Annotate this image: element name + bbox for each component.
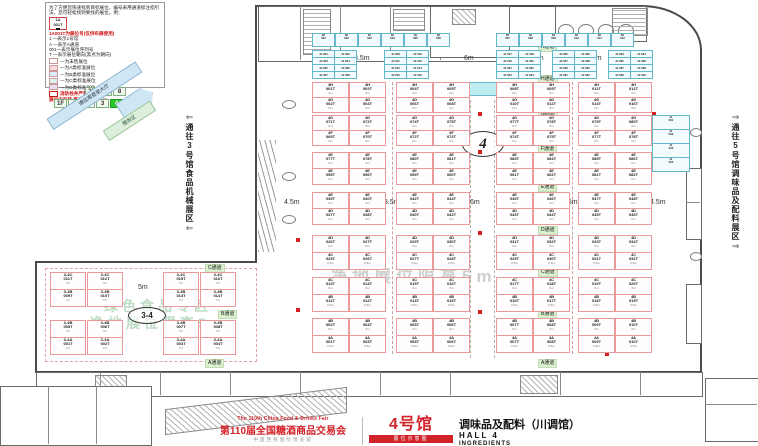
booth-4D043T: 4D043T6m bbox=[496, 208, 533, 225]
booth-4H005T: 4H005T6m bbox=[433, 82, 470, 98]
legend-intro: 为了方便您快速找到目标展位，编号采用通道标注指引法，您可轻松找到要找的展位。例： bbox=[49, 5, 161, 16]
partition bbox=[640, 372, 641, 395]
booth-4B005T: 4B005T6m bbox=[396, 318, 433, 336]
legend-example-line2: 001T bbox=[53, 22, 62, 27]
annex-north-wall bbox=[35, 261, 257, 263]
booth-4L003: 4L003 bbox=[652, 143, 690, 158]
hall-subtitle: 调味品及配料（川调馆） HALL 4 INGREDIENTS bbox=[459, 416, 580, 446]
booth-4D034T: 4D034T6m bbox=[615, 235, 652, 253]
booth-4C016T: 4C016T6m bbox=[433, 277, 470, 295]
booth-4J016: 4J 016 bbox=[406, 71, 429, 79]
booth-3-4C015T: 3-4C015T7m bbox=[163, 272, 199, 290]
booth-4H001T: 4H001T6m bbox=[312, 82, 349, 98]
east-rooms bbox=[686, 168, 702, 240]
booth-4C026T: 4C026T6.5m bbox=[349, 252, 386, 270]
venue-name: 中国西部国际博览城 bbox=[210, 437, 356, 443]
booth-4E055T: 4E055T6m bbox=[312, 168, 349, 185]
left-arrow-icon: ⇐ bbox=[186, 112, 194, 123]
booth-4L001: 4L001 bbox=[652, 115, 690, 130]
booth-4E040T: 4E040T6m bbox=[349, 192, 386, 209]
stairs bbox=[303, 9, 331, 55]
partition bbox=[230, 372, 231, 395]
booth-4C018T: 4C018T6m bbox=[533, 277, 570, 295]
partition bbox=[96, 386, 97, 444]
booth-4K012: 4K012 bbox=[611, 33, 634, 47]
booth-4G071T: 4G071T6m bbox=[312, 115, 349, 131]
booth-3-4B007T: 3-4B007T7m bbox=[163, 320, 199, 338]
booth-3-4B010T: 3-4B010T7m bbox=[87, 289, 123, 307]
booth-4J032: 4J 032 bbox=[574, 71, 597, 79]
booth-4D045T: 4D045T6m bbox=[578, 208, 615, 225]
booth-4G077T: 4G077T6m bbox=[496, 115, 533, 131]
booth-3-4B006T: 3-4B006T7m bbox=[87, 320, 123, 338]
fire-hydrant-marker bbox=[296, 238, 300, 242]
booth-4C031T: 4C031T6.5m bbox=[578, 252, 615, 270]
booth-4G002T: 4G002T6m bbox=[312, 97, 349, 113]
divider bbox=[362, 417, 363, 445]
booth-4K002: 4K002 bbox=[335, 33, 358, 47]
booth-3-4A003T: 3-4A003T7m bbox=[163, 337, 199, 355]
booth-4K011: 4K011 bbox=[588, 33, 611, 47]
booth-4H011T: 4H011T6m bbox=[578, 82, 615, 98]
booth-3-4B014T: 3-4B014T7m bbox=[200, 289, 236, 307]
booth-4J023: 4J 023 bbox=[496, 71, 519, 79]
booth-4J007: 4J 007 bbox=[312, 71, 335, 79]
aisle-width-label: 5m bbox=[138, 284, 148, 291]
hall-name-cn: 调味品及配料（川调馆） bbox=[459, 416, 580, 432]
aisle-label-A通道: A通道 bbox=[205, 359, 224, 368]
aisle-width-label: 4.5m bbox=[284, 199, 300, 206]
door-swing bbox=[690, 252, 702, 261]
legend-example-booth: 1A 001T bbox=[49, 17, 67, 30]
booth-4D030T: 4D030T6m bbox=[433, 235, 470, 253]
booth-4E081T: 4E081T6m bbox=[578, 168, 615, 185]
booth-4E048T: 4E048T6m bbox=[615, 192, 652, 209]
hall-title: 4号馆 展位示意图 bbox=[369, 416, 453, 446]
aisle-label-B通道: B通道 bbox=[218, 310, 237, 319]
booth-4E059T: 4E059T6m bbox=[396, 168, 433, 185]
booth-4B018T: 4B018T6.5m bbox=[578, 294, 615, 312]
title-block: The 110th China Food & Drinks Fair 第110届… bbox=[210, 416, 640, 446]
booth-4G075T: 4G075T6m bbox=[433, 115, 470, 131]
booth-4E046T: 4E046T6m bbox=[533, 192, 570, 209]
booth-3-4A001T: 3-4A001T7m bbox=[50, 337, 86, 355]
booth-4F074T: 4F074T6m bbox=[496, 130, 533, 146]
booth-4G016T: 4G016T6m bbox=[615, 97, 652, 113]
booth-3-4B009T: 3-4B009T7m bbox=[50, 289, 86, 307]
booth-4C019T: 4C019T6m bbox=[578, 277, 615, 295]
booth-4A003T: 4A003T6.5m bbox=[349, 335, 386, 353]
door-swing bbox=[282, 172, 296, 181]
passage-to-hall5: ⇒ 通往5号馆调味品及配料展区 ⇒ bbox=[730, 112, 741, 252]
booth-4A006T: 4A006T6.5m bbox=[433, 335, 470, 353]
booth-4K007: 4K007 bbox=[496, 33, 519, 47]
floorplan-page: 为了方便您快速找到目标展位，编号采用通道标注指引法，您可轻松找到要找的展位。例：… bbox=[0, 0, 758, 446]
booth-3-4A004T: 3-4A004T7m bbox=[200, 337, 236, 355]
partition bbox=[560, 372, 561, 395]
booth-4G012T: 4G012T6m bbox=[533, 97, 570, 113]
booth-4A009T: 4A009T6.5m bbox=[578, 335, 615, 353]
booth-4B015T: 4B015T6.5m bbox=[433, 294, 470, 312]
booth-4D037T: 4D037T6m bbox=[312, 208, 349, 225]
stairs bbox=[520, 375, 558, 394]
booth-4G014T: 4G014T6m bbox=[578, 97, 615, 113]
booth-4F072T: 4F072T6m bbox=[396, 130, 433, 146]
booth-4E045T: 4E045T6m bbox=[496, 192, 533, 209]
booth-3-4A002T: 3-4A002T7m bbox=[87, 337, 123, 355]
aisle-width-label: 4.5m bbox=[650, 199, 666, 206]
booth-4B016T: 4B016T6.5m bbox=[496, 294, 533, 312]
hall-name-en: HALL 4 bbox=[459, 432, 580, 441]
partition bbox=[300, 6, 301, 60]
booth-4F075T: 4F075T6m bbox=[533, 130, 570, 146]
swatch bbox=[49, 71, 58, 77]
booth-3-4C011T: 3-4C011T7m bbox=[50, 272, 86, 290]
west-wall bbox=[255, 5, 257, 262]
legend-key-lines: 1 —表示1号馆A —表示A通道001—表示展位序列号T —表示展位朝向(黑点为… bbox=[49, 36, 161, 58]
booth-4G078T: 4G078T6m bbox=[533, 115, 570, 131]
booth-4J040: 4J 040 bbox=[630, 71, 653, 79]
folding-doors bbox=[258, 140, 276, 252]
booth-4F078T: 4F078T6m bbox=[615, 130, 652, 146]
booth-4B008T: 4B008T6m bbox=[533, 318, 570, 336]
fair-identity: The 110th China Food & Drinks Fair 第110届… bbox=[210, 416, 356, 446]
aisle-line bbox=[392, 82, 393, 354]
booth-4G080T: 4G080T6m bbox=[615, 115, 652, 131]
booth-4E039T: 4E039T6m bbox=[312, 192, 349, 209]
booth-4J039: 4J 039 bbox=[608, 71, 631, 79]
booth-4A008T: 4A008T6.5m bbox=[533, 335, 570, 353]
booth-4B004T: 4B004T6m bbox=[349, 318, 386, 336]
booth-4C017T: 4C017T6m bbox=[496, 277, 533, 295]
booth-3-4C012T: 3-4C012T7m bbox=[87, 272, 123, 290]
booth-4C032T: 4C032T6.5m bbox=[615, 252, 652, 270]
booth-4B010T: 4B010T6m bbox=[615, 318, 652, 336]
booth-4L002: 4L002 bbox=[652, 129, 690, 144]
booth-4C025T: 4C025T6.5m bbox=[312, 252, 349, 270]
booth-4B019T: 4B019T6.5m bbox=[615, 294, 652, 312]
fire-hydrant-marker bbox=[478, 150, 482, 154]
booth-4B013T: 4B013T6.5m bbox=[396, 294, 433, 312]
swatch bbox=[49, 65, 58, 71]
booth-4E061T: 4E061T6m bbox=[496, 168, 533, 185]
booth-4B007T: 4B007T6m bbox=[496, 318, 533, 336]
aisle-label-D通道: D通道 bbox=[538, 226, 558, 235]
partition bbox=[380, 372, 381, 395]
booth-4H004T: 4H004T6m bbox=[396, 82, 433, 98]
escalator bbox=[393, 9, 425, 31]
booth-4J015: 4J 015 bbox=[384, 71, 407, 79]
outbuilding-se bbox=[705, 378, 758, 442]
right-arrow-icon: ⇒ bbox=[732, 241, 740, 252]
booth-4E077T: 4E077T6m bbox=[312, 152, 349, 169]
door-swing bbox=[282, 100, 296, 109]
legend-box: 为了方便您快速找到目标展位，编号采用通道标注指引法，您可轻松找到要找的展位。例：… bbox=[45, 2, 165, 88]
booth-4F069T: 4F069T6m bbox=[312, 130, 349, 146]
legend-swatch-row: —为B类标准展位 bbox=[49, 71, 161, 77]
booth-4D026T: 4D026T6m bbox=[312, 235, 349, 253]
booth-4D038T: 4D038T6m bbox=[349, 208, 386, 225]
booth-4L004: 4L004 bbox=[652, 157, 690, 172]
booth-4C013T: 4C013T6m bbox=[312, 277, 349, 295]
annex-west-wall bbox=[35, 261, 37, 372]
booth-4K008: 4K008 bbox=[519, 33, 542, 47]
booth-4H002T: 4H002T6m bbox=[349, 82, 386, 98]
booth-4D032T: 4D032T6m bbox=[533, 235, 570, 253]
booth-4B006T: 4B006T6m bbox=[433, 318, 470, 336]
booth-4J024: 4J 024 bbox=[518, 71, 541, 79]
booth-4E078T: 4E078T6m bbox=[349, 152, 386, 169]
booth-4F073T: 4F073T6m bbox=[433, 130, 470, 146]
booth-4K005: 4K005 bbox=[404, 33, 427, 47]
aisle-width-label: 6m bbox=[470, 199, 480, 206]
booth-4E044T: 4E044T6m bbox=[433, 192, 470, 209]
booth-4G004T: 4G004T6m bbox=[349, 97, 386, 113]
booth-4E080T: 4E080T6m bbox=[396, 152, 433, 169]
partition bbox=[48, 386, 49, 444]
swatch bbox=[49, 78, 58, 84]
booth-4K006: 4K006 bbox=[427, 33, 450, 47]
booth-4B017T: 4B017T6.5m bbox=[533, 294, 570, 312]
stairs bbox=[452, 9, 476, 25]
door-swing bbox=[690, 128, 702, 137]
booth-4H012T: 4H012T6m bbox=[615, 82, 652, 98]
booth-4D042T: 4D042T6m bbox=[433, 208, 470, 225]
fire-hydrant-marker bbox=[478, 310, 482, 314]
booth-4D040T: 4D040T6m bbox=[396, 208, 433, 225]
booth-4E083T: 4E083T6m bbox=[496, 152, 533, 169]
booth-4K009: 4K009 bbox=[542, 33, 565, 47]
booth-4B009T: 4B009T6m bbox=[578, 318, 615, 336]
legend-swatch-row: —为未售展位 bbox=[49, 58, 161, 64]
booth-4F077T: 4F077T6m bbox=[578, 130, 615, 146]
booth-4G079T: 4G079T6m bbox=[578, 115, 615, 131]
booth-4C030T: 4C030T6.5m bbox=[533, 252, 570, 270]
booth-3-4C016T: 3-4C016T7m bbox=[200, 272, 236, 290]
fire-hydrant-marker bbox=[296, 308, 300, 312]
aisle-line bbox=[572, 82, 573, 354]
booth-4A007T: 4A007T6.5m bbox=[496, 335, 533, 353]
outbuilding-sw bbox=[0, 386, 152, 446]
booth-4E084T: 4E084T6m bbox=[533, 152, 570, 169]
fire-hydrant-icon bbox=[49, 91, 58, 97]
booth-3-4B005T: 3-4B005T7m bbox=[50, 320, 86, 338]
stairs bbox=[612, 8, 648, 36]
booth-4D029T: 4D029T6m bbox=[396, 235, 433, 253]
right-arrow-icon: ⇒ bbox=[732, 112, 740, 123]
booth-4C014T: 4C014T6m bbox=[349, 277, 386, 295]
partition bbox=[160, 372, 161, 395]
left-arrow-icon: ⇐ bbox=[186, 223, 194, 234]
booth-3-4B008T: 3-4B008T7m bbox=[200, 320, 236, 338]
booth-4H009T: 4H009T6m bbox=[533, 82, 570, 98]
booth-4E042T: 4E042T6m bbox=[396, 192, 433, 209]
booth-4C020T: 4C020T6m bbox=[615, 277, 652, 295]
booth-3-4B013T: 3-4B013T7m bbox=[163, 289, 199, 307]
booth-4B011T: 4B011T6.5m bbox=[312, 294, 349, 312]
booth-4A010T: 4A010T6.5m bbox=[615, 335, 652, 353]
partition bbox=[450, 372, 451, 395]
booth-4J008: 4J 008 bbox=[334, 71, 357, 79]
booth-4G008T: 4G008T6m bbox=[433, 97, 470, 113]
booth-4K004: 4K004 bbox=[381, 33, 404, 47]
passage-to-hall3: ⇐ 通往3号馆食品机械展区 ⇐ bbox=[184, 112, 195, 234]
hall-category-en: INGREDIENTS bbox=[459, 441, 580, 446]
fair-name-cn: 第110届全国糖酒商品交易会 bbox=[210, 422, 356, 437]
aisle-label-A通道: A通道 bbox=[538, 359, 557, 368]
booth-4E085T: 4E085T6m bbox=[578, 152, 615, 169]
booth-4B012T: 4B012T6.5m bbox=[349, 294, 386, 312]
booth-4E086T: 4E086T6m bbox=[615, 152, 652, 169]
booth-4E082T: 4E082T6m bbox=[615, 168, 652, 185]
booth-4E060T: 4E060T6m bbox=[433, 168, 470, 185]
east-rooms bbox=[686, 284, 702, 344]
booth-4G074T: 4G074T6m bbox=[396, 115, 433, 131]
door-swing bbox=[282, 215, 296, 224]
booth-4K010: 4K010 bbox=[565, 33, 588, 47]
hall-number: 4号馆 bbox=[369, 416, 453, 434]
booth-4E047T: 4E047T6m bbox=[578, 192, 615, 209]
partition bbox=[705, 404, 757, 405]
aisle-width-label: 6m bbox=[464, 55, 474, 62]
booth-4B002T: 4B002T6m bbox=[312, 318, 349, 336]
booth-4E056T: 4E056T6m bbox=[349, 168, 386, 185]
booth-4G006T: 4G006T6m bbox=[396, 97, 433, 113]
booth-4A001T: 4A001T6.5m bbox=[312, 335, 349, 353]
fire-hydrant-marker bbox=[478, 112, 482, 116]
partition bbox=[686, 202, 700, 203]
booth-4D031T: 4D031T6m bbox=[496, 235, 533, 253]
legend-key-line: T —表示展位朝向(黑点为朝向) bbox=[49, 52, 161, 57]
booth-4E062T: 4E062T6m bbox=[533, 168, 570, 185]
plan-badge: 展位示意图 bbox=[369, 435, 453, 443]
booth-4D044T: 4D044T6m bbox=[533, 208, 570, 225]
booth-4D027T: 4D027T6m bbox=[349, 235, 386, 253]
booth-4D046T: 4D046T6m bbox=[615, 208, 652, 225]
booth-4C029T: 4C029T6.5m bbox=[496, 252, 533, 270]
swatch bbox=[49, 84, 58, 90]
booth-4K003: 4K003 bbox=[358, 33, 381, 47]
annex-zone-marker: 3-4 bbox=[128, 307, 166, 324]
booth-4A005T: 4A005T6.5m bbox=[396, 335, 433, 353]
booth-4C015T: 4C015T6m bbox=[396, 277, 433, 295]
booth-4C027T: 4C027T6.5m bbox=[396, 252, 433, 270]
orientation-dot bbox=[56, 28, 60, 30]
booth-4K001: 4K001 bbox=[312, 33, 335, 47]
booth-4D033T: 4D033T6m bbox=[578, 235, 615, 253]
booth-4E081T: 4E081T6m bbox=[433, 152, 470, 169]
booth-4C028T: 4C028T6.5m bbox=[433, 252, 470, 270]
booth-4G010T: 4G010T6m bbox=[496, 97, 533, 113]
fire-hydrant-marker bbox=[478, 231, 482, 235]
booth-4J031: 4J 031 bbox=[552, 71, 575, 79]
booth-4H008T: 4H008T6m bbox=[496, 82, 533, 98]
booth-4G072T: 4G072T6m bbox=[349, 115, 386, 131]
swatch bbox=[49, 58, 58, 64]
booth-4F070T: 4F070T6m bbox=[349, 130, 386, 146]
legend-swatch-row: —为A类标准展位 bbox=[49, 65, 161, 71]
